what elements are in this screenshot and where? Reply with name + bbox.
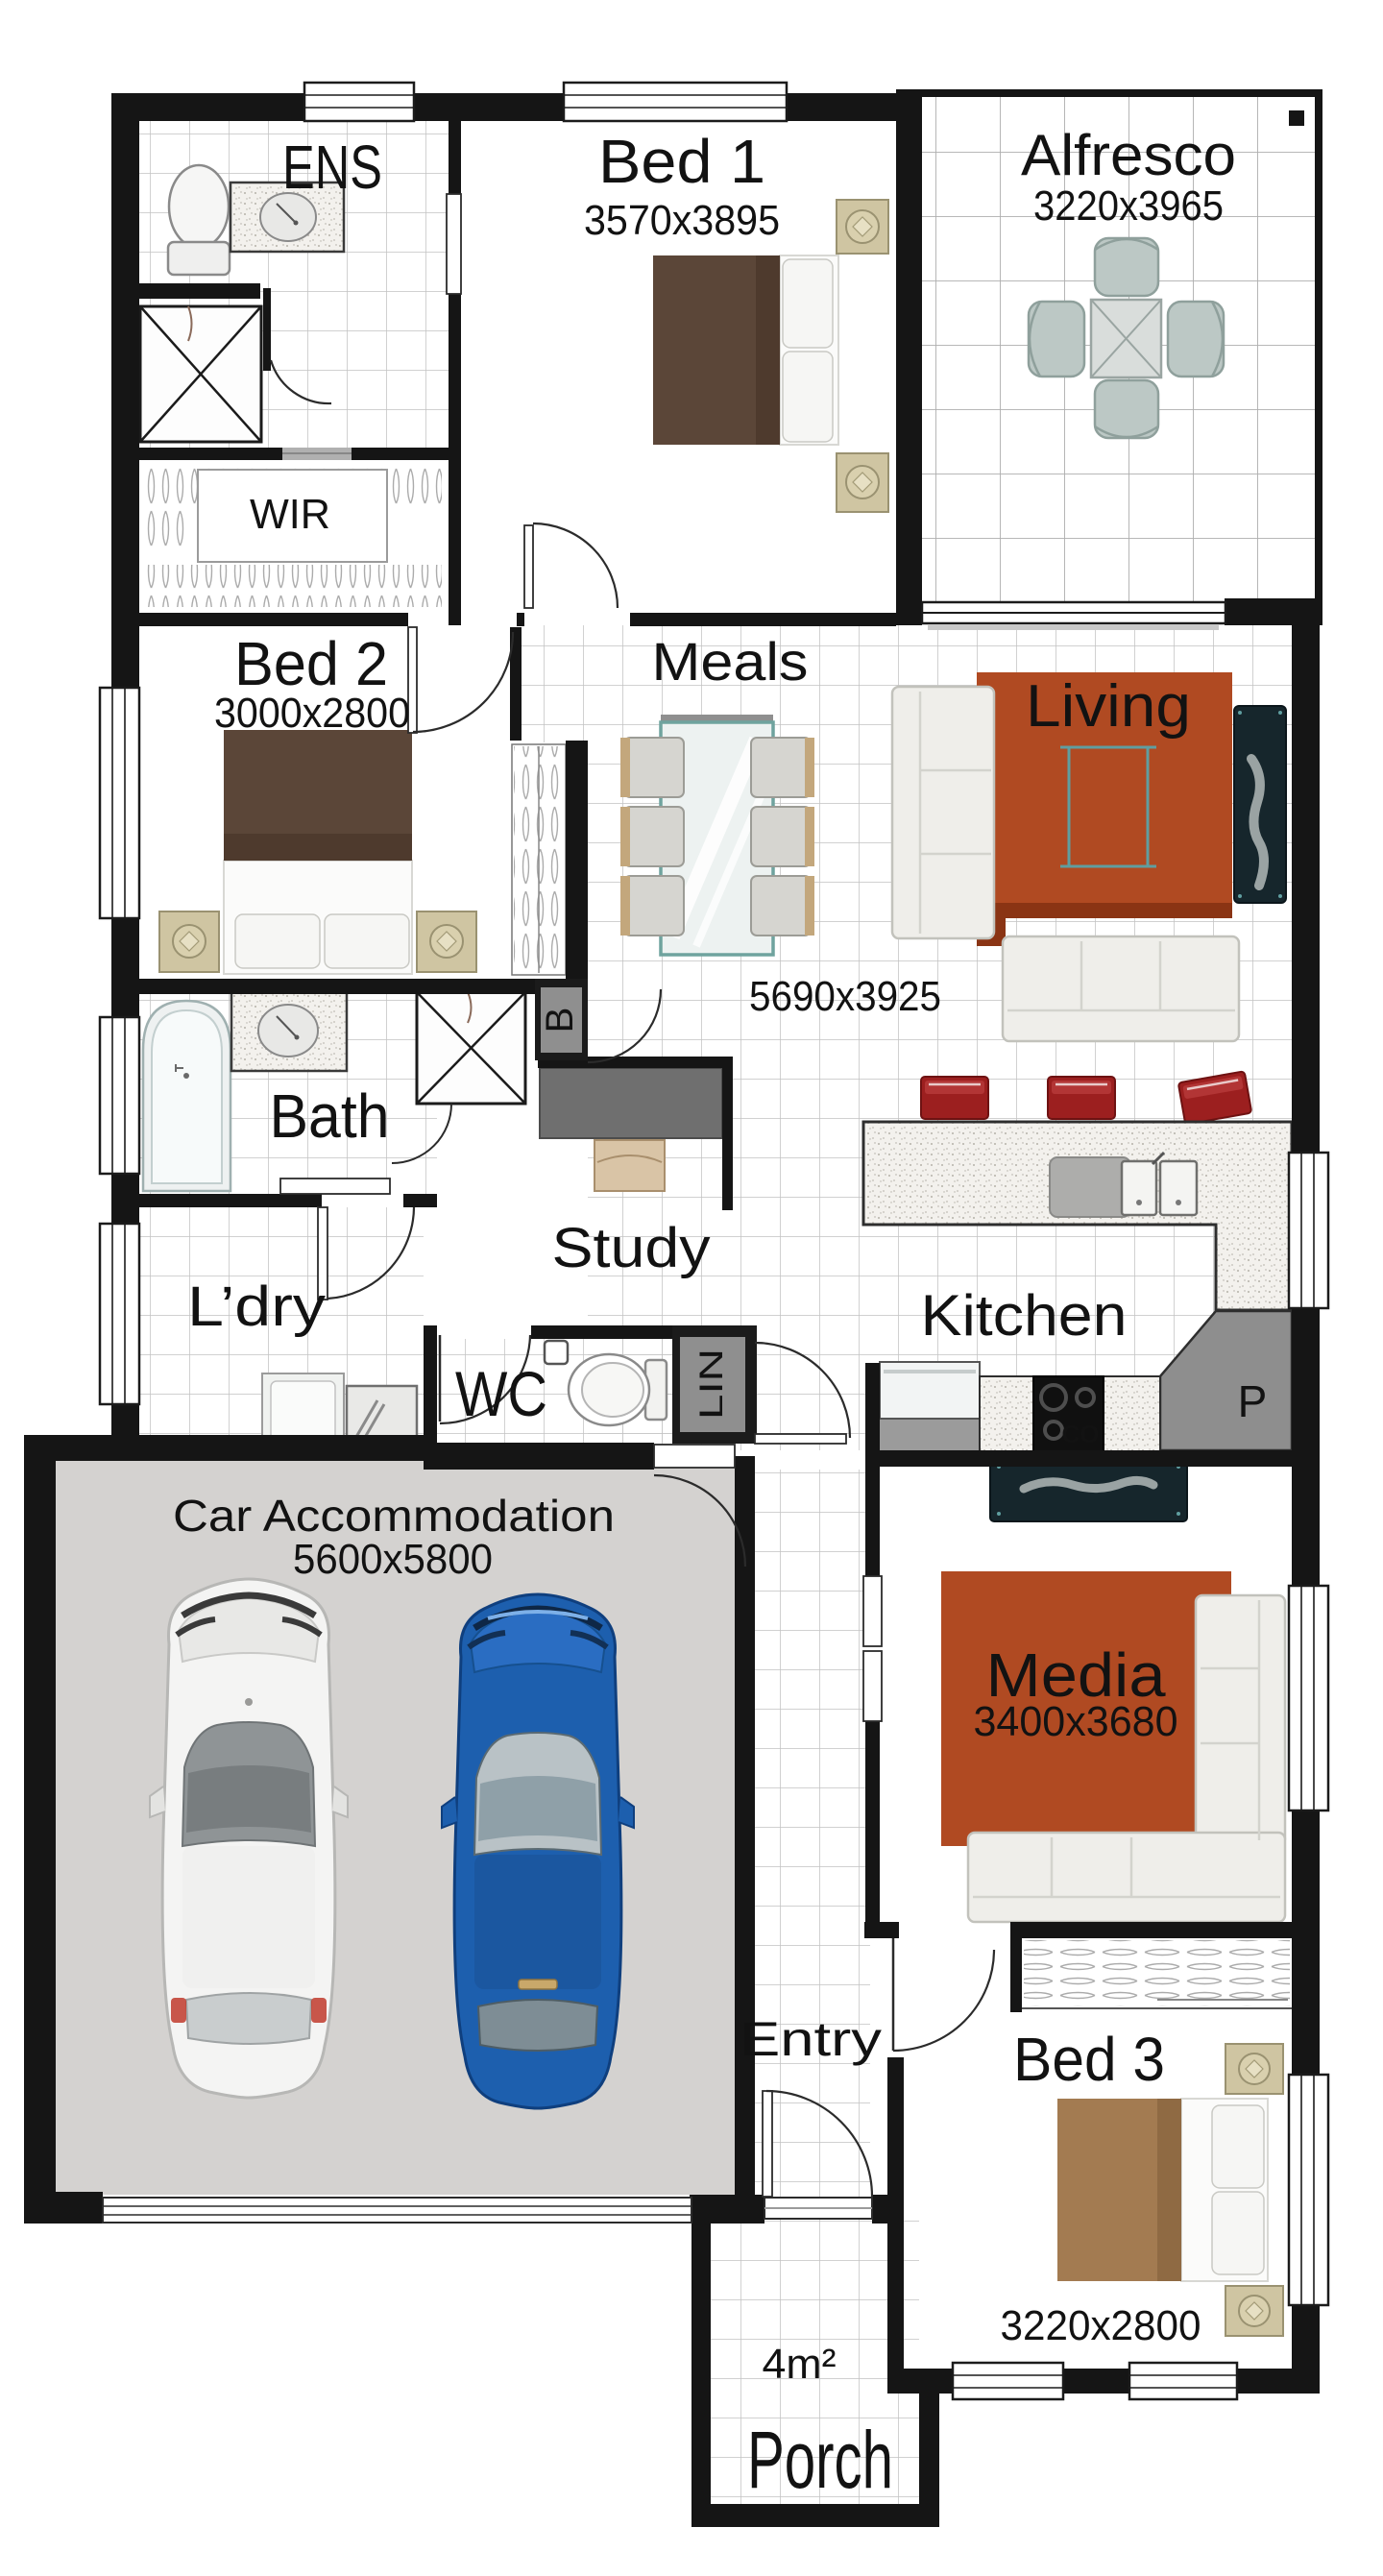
- svg-text:LIN: LIN: [693, 1349, 730, 1420]
- svg-text:Entry: Entry: [740, 2012, 882, 2066]
- svg-text:Bed 1: Bed 1: [598, 127, 765, 196]
- svg-text:3400x3680: 3400x3680: [974, 1698, 1178, 1745]
- svg-text:5690x3925: 5690x3925: [749, 973, 941, 1020]
- svg-text:Porch: Porch: [747, 2415, 893, 2505]
- svg-text:ENS: ENS: [282, 133, 382, 202]
- svg-text:Study: Study: [552, 1217, 711, 1279]
- svg-text:3220x3965: 3220x3965: [1033, 182, 1224, 230]
- svg-text:CO: CO: [1062, 1420, 1100, 1448]
- svg-text:P: P: [1238, 1376, 1268, 1426]
- svg-text:3220x2800: 3220x2800: [1001, 2302, 1201, 2349]
- svg-text:3000x2800: 3000x2800: [214, 690, 410, 737]
- svg-text:3570x3895: 3570x3895: [584, 197, 780, 244]
- svg-text:4m²: 4m²: [763, 2341, 837, 2388]
- svg-text:Bed 2: Bed 2: [234, 629, 388, 698]
- svg-text:Car Accommodation: Car Accommodation: [173, 1491, 615, 1541]
- svg-text:Living: Living: [1026, 673, 1191, 740]
- svg-text:Bath: Bath: [270, 1081, 390, 1151]
- svg-text:Bed 3: Bed 3: [1013, 2025, 1165, 2094]
- svg-text:WIR: WIR: [250, 491, 330, 538]
- svg-text:5600x5800: 5600x5800: [293, 1536, 493, 1583]
- svg-text:Meals: Meals: [652, 631, 809, 692]
- svg-text:Alfresco: Alfresco: [1021, 123, 1236, 187]
- svg-text:B: B: [539, 1008, 581, 1033]
- svg-text:L’dry: L’dry: [187, 1276, 326, 1338]
- svg-text:WC: WC: [455, 1358, 547, 1429]
- svg-text:Kitchen: Kitchen: [921, 1283, 1128, 1348]
